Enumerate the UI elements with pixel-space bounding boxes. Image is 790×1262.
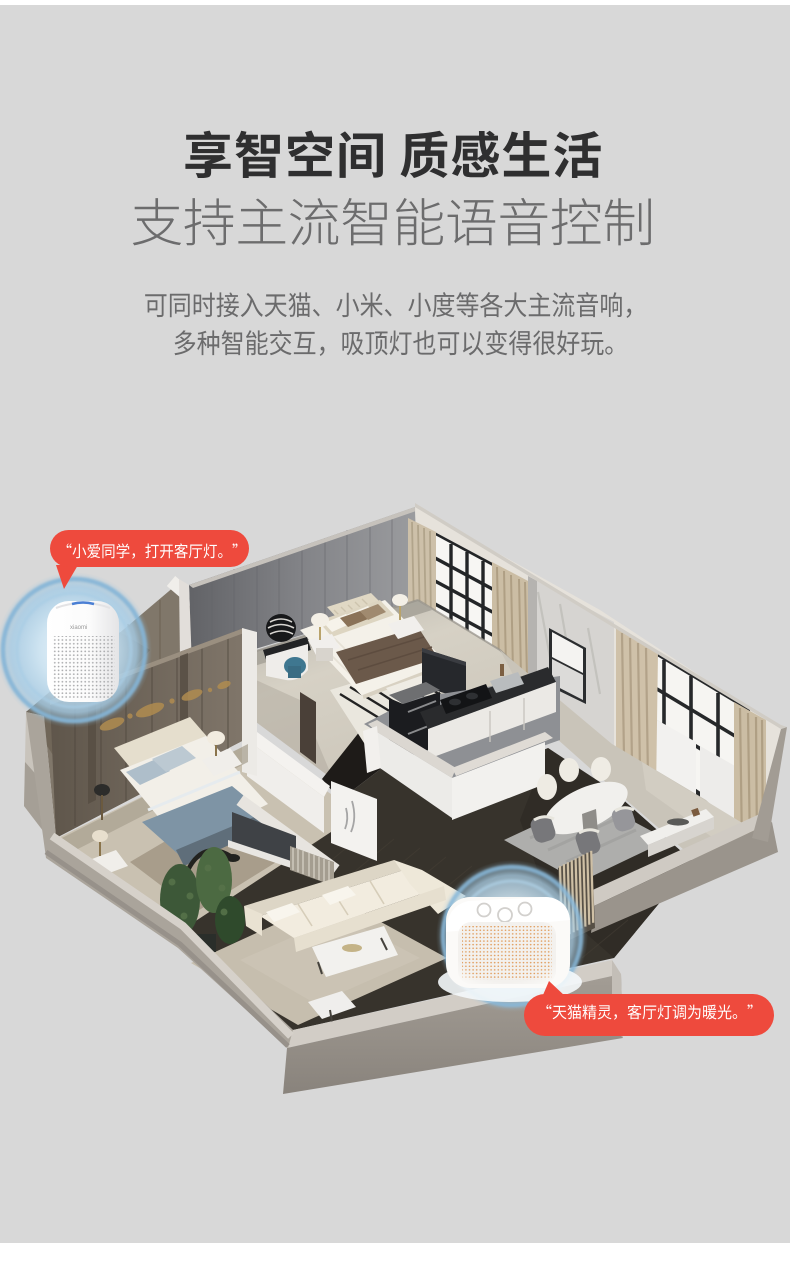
svg-text:xiaomi: xiaomi xyxy=(70,625,87,631)
